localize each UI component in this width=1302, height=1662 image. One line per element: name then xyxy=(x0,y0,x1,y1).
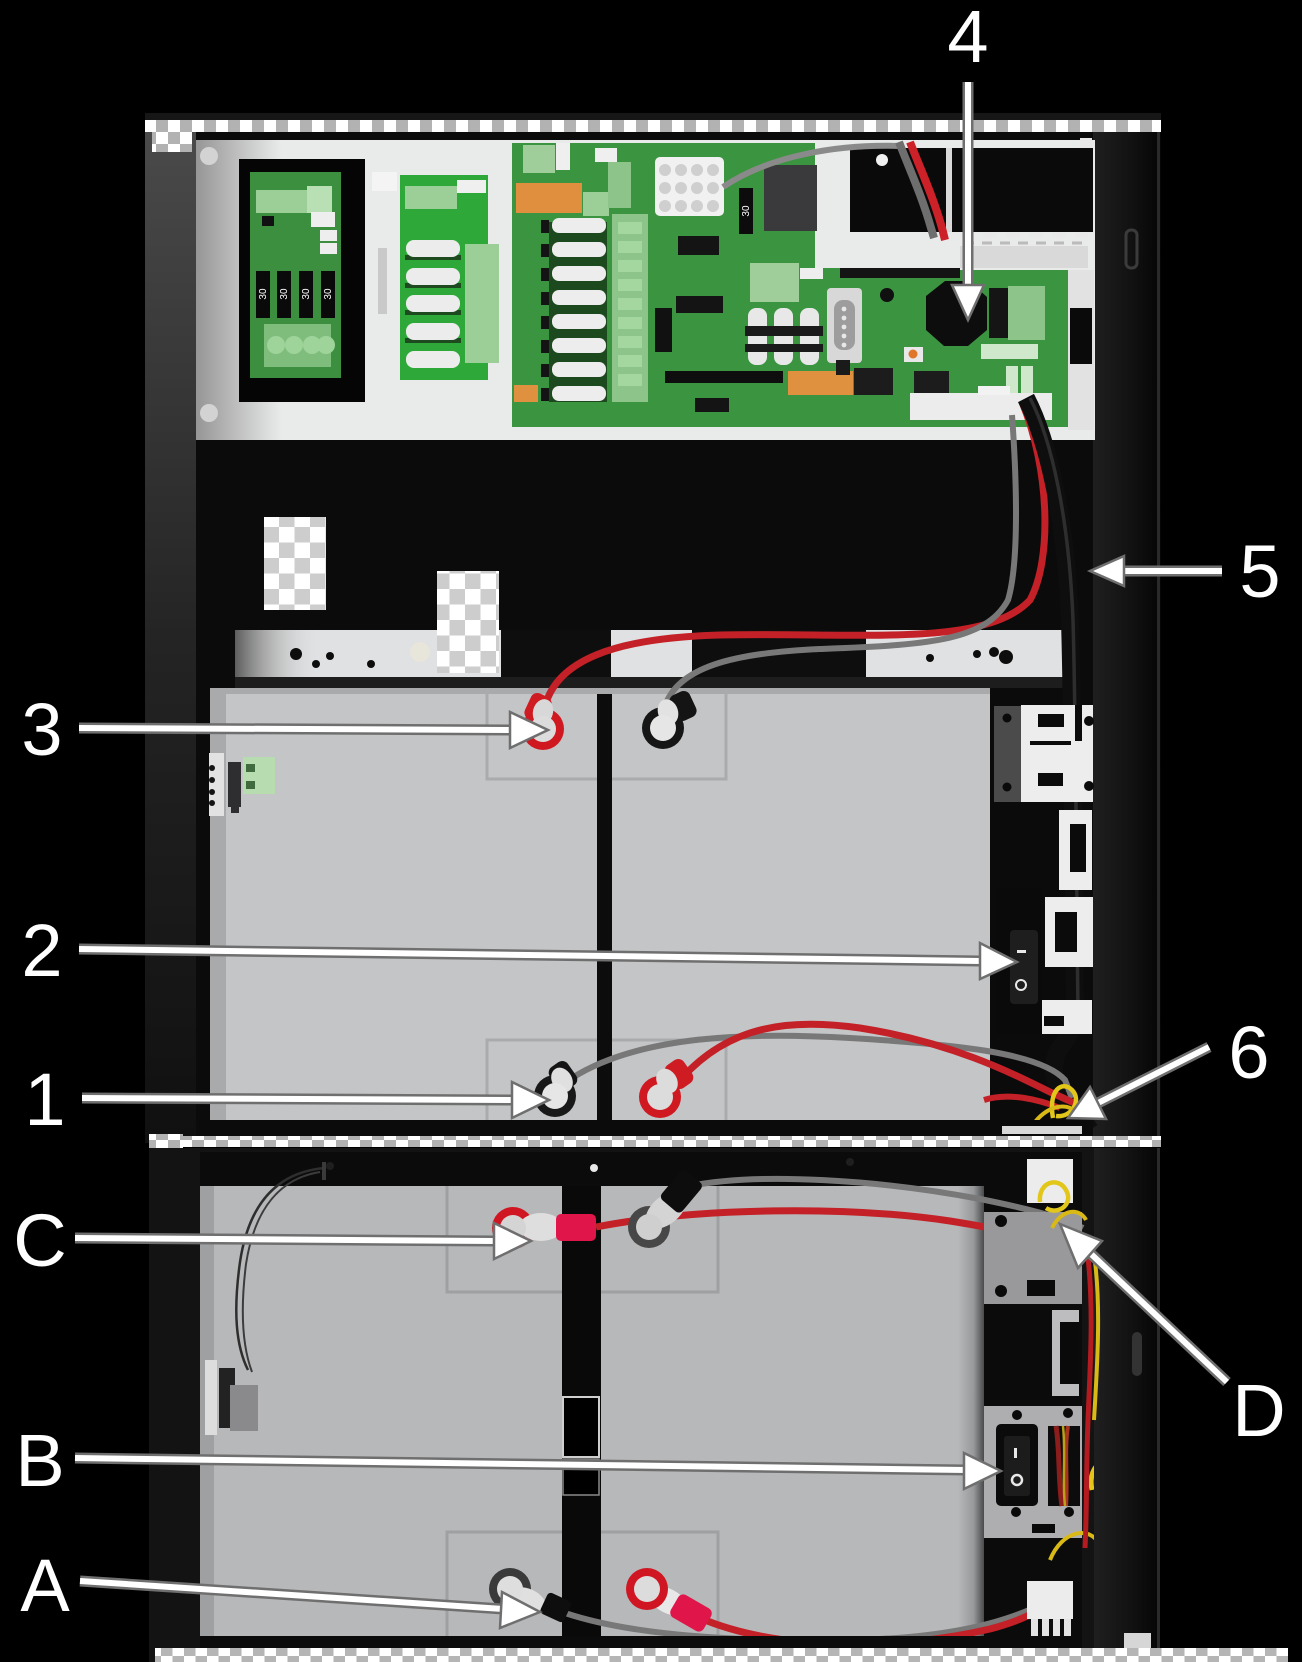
svg-text:D: D xyxy=(1232,1369,1285,1452)
svg-text:C: C xyxy=(13,1199,66,1282)
svg-text:30: 30 xyxy=(279,288,290,300)
svg-text:B: B xyxy=(15,1419,64,1502)
svg-text:5: 5 xyxy=(1239,530,1280,613)
svg-text:3: 3 xyxy=(21,688,62,771)
svg-text:30: 30 xyxy=(741,205,752,217)
svg-text:4: 4 xyxy=(947,0,988,78)
svg-text:A: A xyxy=(20,1544,70,1627)
svg-text:6: 6 xyxy=(1228,1011,1269,1094)
svg-text:30: 30 xyxy=(258,288,269,300)
svg-text:30: 30 xyxy=(323,288,334,300)
svg-text:1: 1 xyxy=(24,1058,65,1141)
svg-text:2: 2 xyxy=(21,909,62,992)
svg-text:30: 30 xyxy=(301,288,312,300)
